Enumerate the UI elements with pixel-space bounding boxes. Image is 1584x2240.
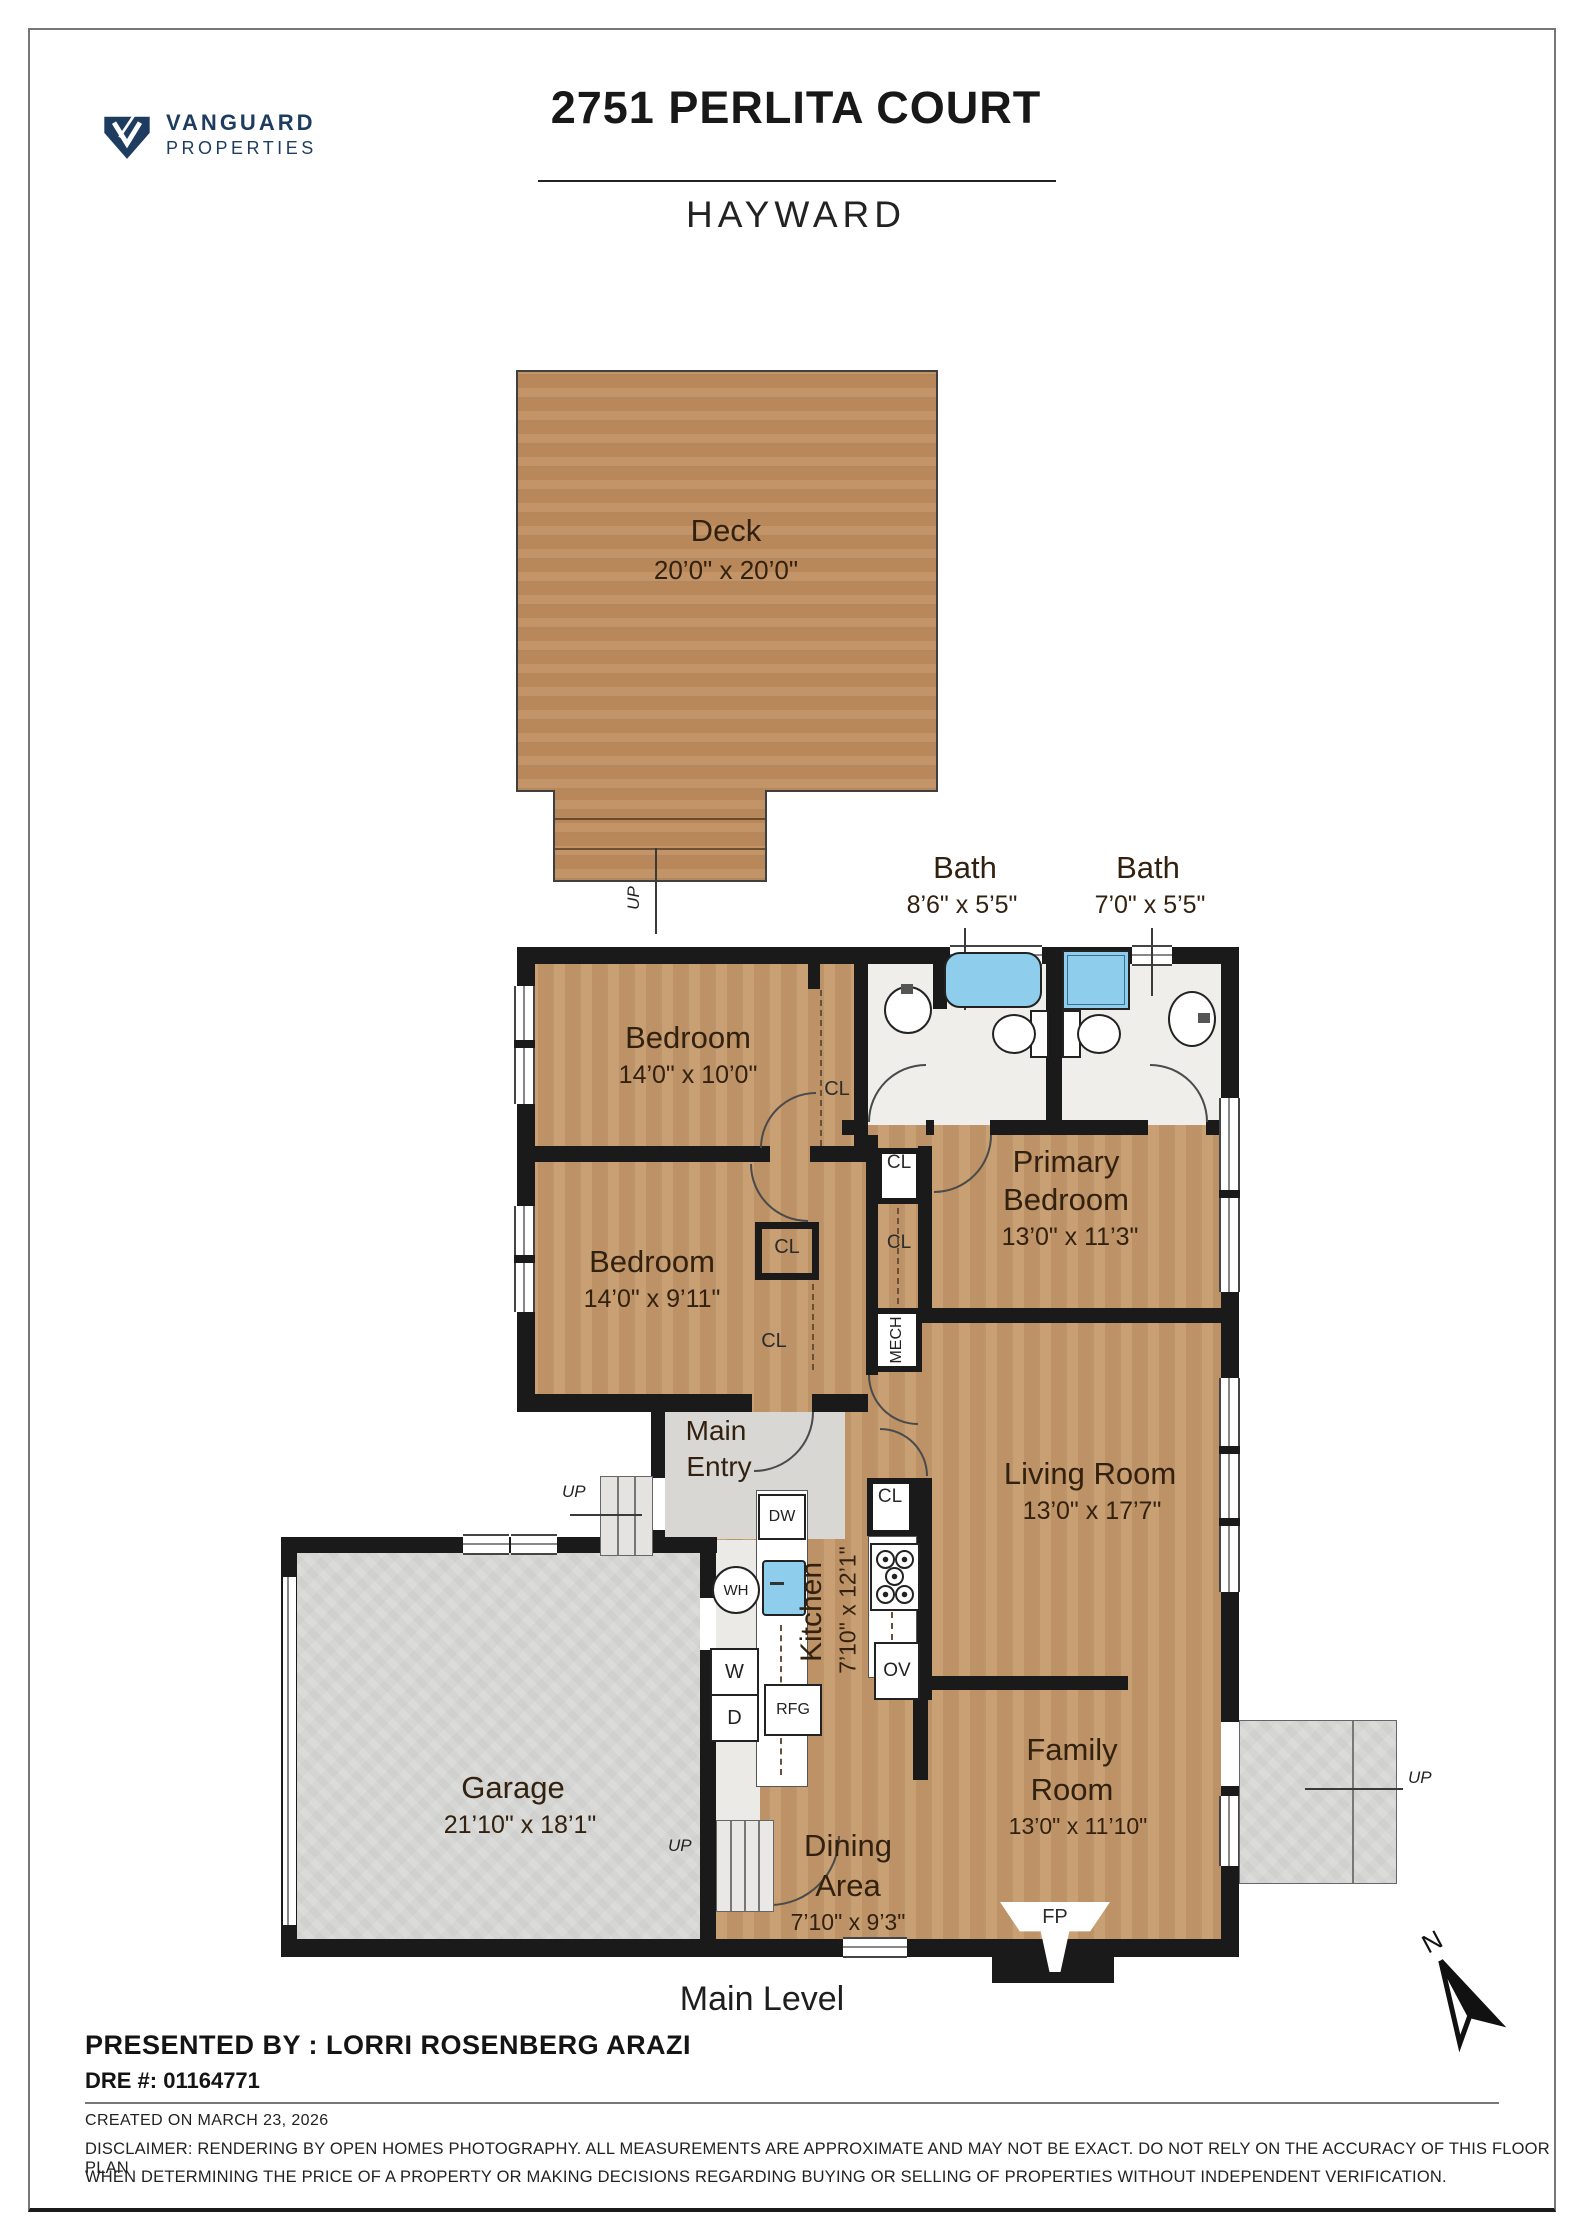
bedroom1-dims: 14’0" x 10’0" xyxy=(619,1062,758,1088)
family-room-label-line2: Room xyxy=(1031,1774,1114,1807)
stairs-up-label: UP xyxy=(668,1836,692,1856)
refrigerator: RFG xyxy=(764,1684,822,1736)
footer-divider xyxy=(85,2102,1499,2104)
kitchen-dims: 7’10" x 12’1" xyxy=(837,1546,860,1674)
wall xyxy=(808,947,820,989)
window xyxy=(1219,1796,1240,1866)
closet-front-dashed xyxy=(897,1208,899,1304)
water-heater: WH xyxy=(712,1566,760,1614)
north-label: N xyxy=(1417,1924,1448,1959)
bathtub xyxy=(944,952,1042,1008)
stair-tread-line xyxy=(555,818,765,820)
deck-up-label: UP xyxy=(624,886,644,910)
wall xyxy=(926,1676,1128,1690)
closet-label: CL xyxy=(887,1232,911,1254)
wall xyxy=(517,1146,770,1162)
door-opening xyxy=(700,1598,716,1650)
sink xyxy=(884,986,932,1034)
primary-bedroom-label-line2: Bedroom xyxy=(1003,1184,1129,1217)
main-entry-label-line2: Entry xyxy=(686,1452,751,1481)
wall xyxy=(990,1120,1148,1135)
shower xyxy=(1062,950,1130,1010)
faucet xyxy=(1198,1013,1210,1023)
toilet-bowl xyxy=(1077,1014,1121,1054)
family-room-label-line1: Family xyxy=(1026,1734,1117,1767)
window xyxy=(463,1534,509,1555)
dre-number: DRE #: 01164771 xyxy=(85,2068,260,2094)
garage-label: Garage xyxy=(461,1772,564,1805)
burner-icon xyxy=(885,1567,904,1586)
burner-icon xyxy=(895,1585,914,1604)
dryer: D xyxy=(710,1694,759,1742)
wall xyxy=(517,947,1239,964)
stair-tread-line xyxy=(758,1821,760,1911)
closet-front-dashed xyxy=(820,990,822,1146)
brand-name-line2: PROPERTIES xyxy=(166,138,317,159)
deck-stairs xyxy=(553,790,767,882)
washer: W xyxy=(710,1648,759,1696)
wall xyxy=(517,1394,752,1412)
garage-floor xyxy=(297,1553,701,1939)
vanguard-logo-icon xyxy=(100,104,154,164)
wall xyxy=(842,1120,868,1135)
burner-icon xyxy=(895,1550,914,1569)
entry-up-label: UP xyxy=(562,1482,586,1502)
closet-label: CL xyxy=(824,1078,850,1101)
title-underline xyxy=(538,180,1056,182)
shower-inner-line xyxy=(1067,955,1125,1005)
bath1-label: Bath xyxy=(933,852,997,885)
kitchen-label: Kitchen xyxy=(797,1562,827,1662)
faucet xyxy=(770,1582,784,1585)
closet-front-dashed xyxy=(812,1284,814,1370)
rear-porch xyxy=(1239,1720,1397,1884)
level-label: Main Level xyxy=(680,1982,844,2018)
north-arrow-icon: N xyxy=(1408,1922,1512,2062)
living-room-label: Living Room xyxy=(1004,1458,1176,1491)
oven: OV xyxy=(874,1642,920,1700)
disclaimer-line2: WHEN DETERMINING THE PRICE OF A PROPERTY… xyxy=(85,2168,1447,2187)
floor-plan-page: VANGUARD PROPERTIES 2751 PERLITA COURT H… xyxy=(0,0,1584,2240)
stair-tread-line xyxy=(730,1821,732,1911)
bath2-label: Bath xyxy=(1116,852,1180,885)
bedroom2-label: Bedroom xyxy=(589,1246,715,1279)
door-opening xyxy=(651,1478,665,1530)
family-room-dims: 13’0" x 11’10" xyxy=(1009,1814,1148,1838)
primary-bedroom-dims: 13’0" x 11’3" xyxy=(1002,1224,1139,1250)
bedroom2-dims: 14’0" x 9’11" xyxy=(584,1286,721,1312)
closet-label: CL xyxy=(761,1330,787,1353)
living-room-dims: 13’0" x 17’7" xyxy=(1023,1498,1162,1524)
door-opening xyxy=(1221,1722,1239,1786)
sink xyxy=(1168,991,1216,1047)
created-on: CREATED ON MARCH 23, 2026 xyxy=(85,2112,329,2130)
window-mullion xyxy=(1219,1446,1240,1454)
porch-divider-line xyxy=(1352,1721,1354,1883)
entry-up-leader-line xyxy=(570,1514,642,1516)
interior-stairs xyxy=(716,1820,774,1912)
entry-porch-steps xyxy=(600,1476,653,1556)
toilet-bowl xyxy=(992,1014,1036,1054)
stair-tread-line xyxy=(634,1477,636,1555)
dining-area-dims: 7’10" x 9’3" xyxy=(791,1910,906,1934)
stair-tread-line xyxy=(617,1477,619,1555)
bedroom1-label: Bedroom xyxy=(625,1022,751,1055)
garage-dims: 21’10" x 18’1" xyxy=(444,1812,597,1838)
garage-door-line xyxy=(287,1577,289,1925)
window xyxy=(843,1937,907,1958)
dining-area-label-line2: Area xyxy=(815,1870,880,1903)
porch-up-label: UP xyxy=(1408,1768,1432,1788)
deck-up-leader-line xyxy=(655,848,657,934)
dishwasher: DW xyxy=(758,1494,806,1540)
page-subtitle: HAYWARD xyxy=(686,196,906,235)
window xyxy=(511,1534,557,1555)
window-mullion xyxy=(514,1040,535,1048)
counter-dashed-line xyxy=(891,1612,893,1640)
stove xyxy=(870,1543,920,1611)
main-entry-label-line1: Main xyxy=(686,1416,747,1445)
deck-label: Deck xyxy=(691,515,762,548)
closet-label: CL xyxy=(774,1236,800,1259)
presented-by: PRESENTED BY : LORRI ROSENBERG ARAZI xyxy=(85,2030,691,2061)
window-mullion xyxy=(514,1255,535,1263)
burner-icon xyxy=(876,1585,895,1604)
window-mullion xyxy=(1219,1190,1240,1198)
wall xyxy=(918,1308,1239,1323)
closet-label: CL xyxy=(887,1152,911,1174)
dining-area-label-line1: Dining xyxy=(804,1830,892,1863)
fireplace-label: FP xyxy=(1042,1906,1068,1929)
faucet xyxy=(901,984,913,994)
window-mullion xyxy=(1219,1518,1240,1526)
brand-name-line1: VANGUARD xyxy=(166,110,315,136)
primary-bedroom-label-line1: Primary xyxy=(1013,1146,1120,1179)
bath1-dims: 8’6" x 5’5" xyxy=(907,892,1018,918)
closet-label: CL xyxy=(878,1486,902,1508)
bath2-leader-line xyxy=(1151,928,1153,996)
stair-tread-line xyxy=(555,848,765,850)
stair-tread-line xyxy=(744,1821,746,1911)
mech-label: MECH xyxy=(889,1316,905,1363)
porch-up-leader-line xyxy=(1305,1788,1403,1790)
deck-dims: 20’0" x 20’0" xyxy=(654,557,798,584)
wall xyxy=(926,1120,934,1135)
wall xyxy=(812,1394,868,1412)
garage-door-opening xyxy=(283,1577,296,1925)
page-title: 2751 PERLITA COURT xyxy=(551,84,1042,131)
window xyxy=(1219,1378,1240,1592)
bath2-dims: 7’0" x 5’5" xyxy=(1095,892,1206,918)
